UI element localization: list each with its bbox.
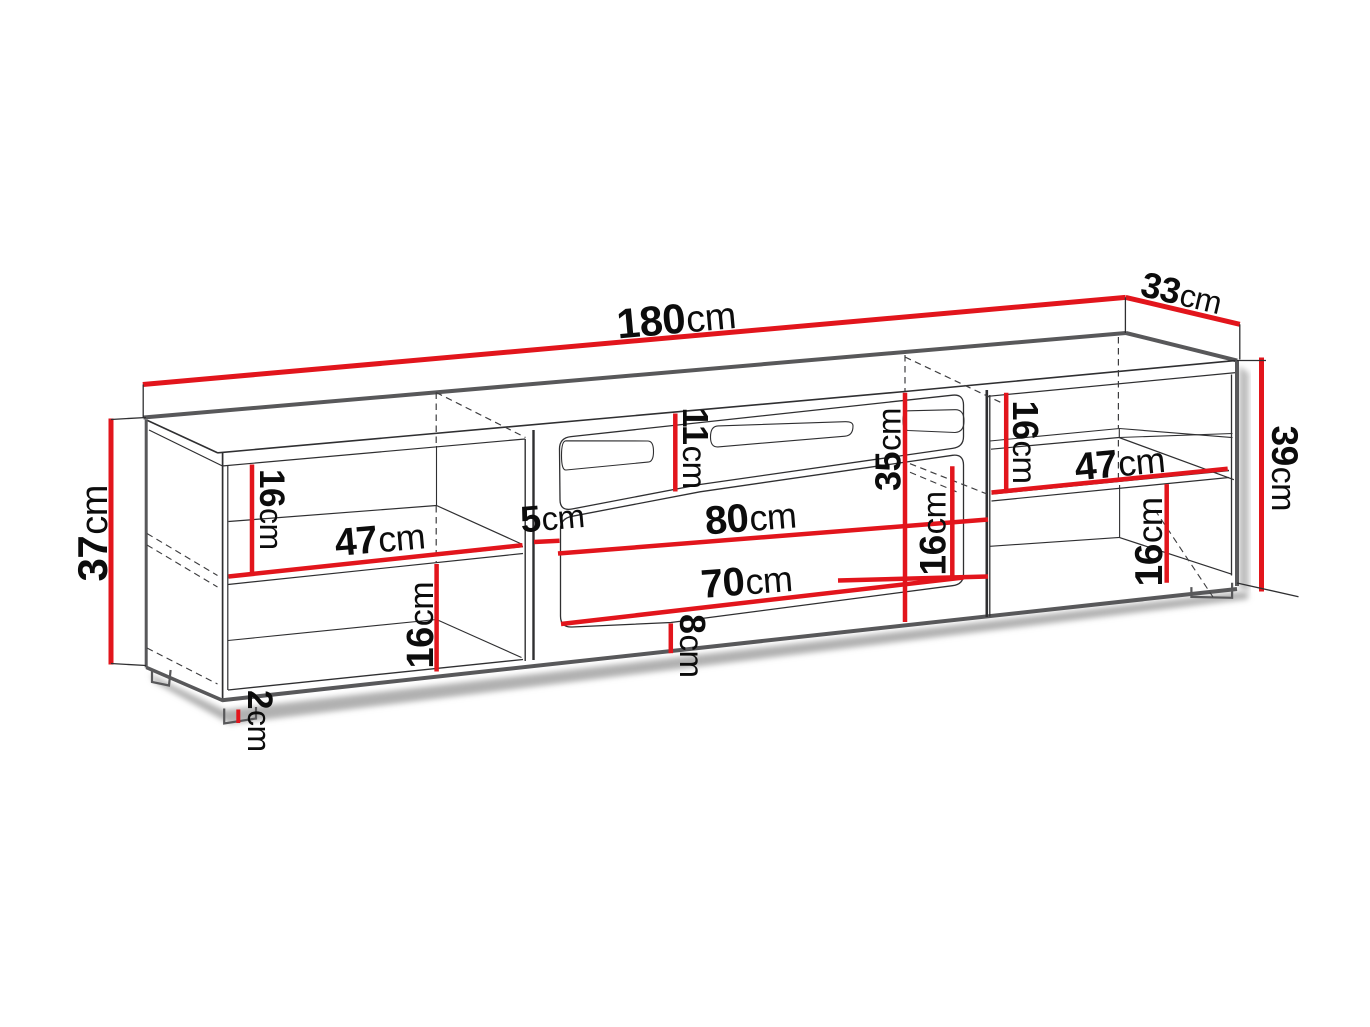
svg-text:70cm: 70cm (699, 556, 794, 607)
svg-text:16cm: 16cm (400, 582, 442, 669)
svg-text:39cm: 39cm (1264, 426, 1305, 511)
svg-text:80cm: 80cm (703, 492, 798, 543)
svg-text:8cm: 8cm (672, 614, 713, 678)
svg-text:16cm: 16cm (913, 491, 954, 575)
svg-text:37cm: 37cm (69, 485, 116, 581)
svg-text:16cm: 16cm (252, 469, 291, 550)
svg-text:11cm: 11cm (675, 408, 716, 489)
svg-text:16cm: 16cm (1005, 401, 1046, 484)
svg-text:16cm: 16cm (1128, 497, 1171, 586)
svg-text:2cm: 2cm (240, 690, 279, 752)
svg-text:35cm: 35cm (868, 408, 909, 491)
svg-text:5cm: 5cm (519, 494, 586, 540)
